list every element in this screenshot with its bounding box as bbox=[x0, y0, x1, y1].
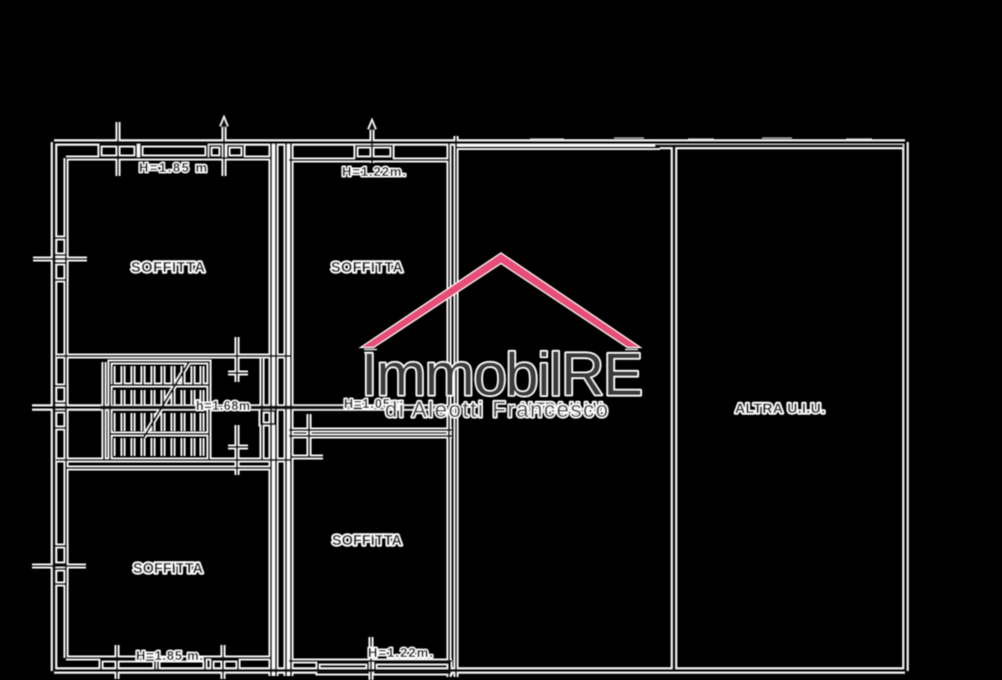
svg-text:H=1.22m.: H=1.22m. bbox=[342, 164, 406, 179]
svg-text:SOFFITTA: SOFFITTA bbox=[131, 260, 206, 276]
svg-text:di Aleotti Francesco: di Aleotti Francesco bbox=[385, 397, 608, 422]
svg-text:H=1.22m.: H=1.22m. bbox=[368, 645, 433, 660]
svg-text:SOFFITTA: SOFFITTA bbox=[133, 561, 204, 577]
svg-text:h=1.68m: h=1.68m bbox=[196, 399, 250, 413]
svg-text:SOFFITTA: SOFFITTA bbox=[331, 260, 404, 276]
svg-text:H=1.85 m: H=1.85 m bbox=[139, 160, 207, 175]
svg-text:ALTRA U.I.U.: ALTRA U.I.U. bbox=[735, 400, 825, 416]
svg-text:SOFFITTA: SOFFITTA bbox=[332, 533, 403, 549]
svg-text:H=1.85 m.: H=1.85 m. bbox=[136, 648, 203, 663]
